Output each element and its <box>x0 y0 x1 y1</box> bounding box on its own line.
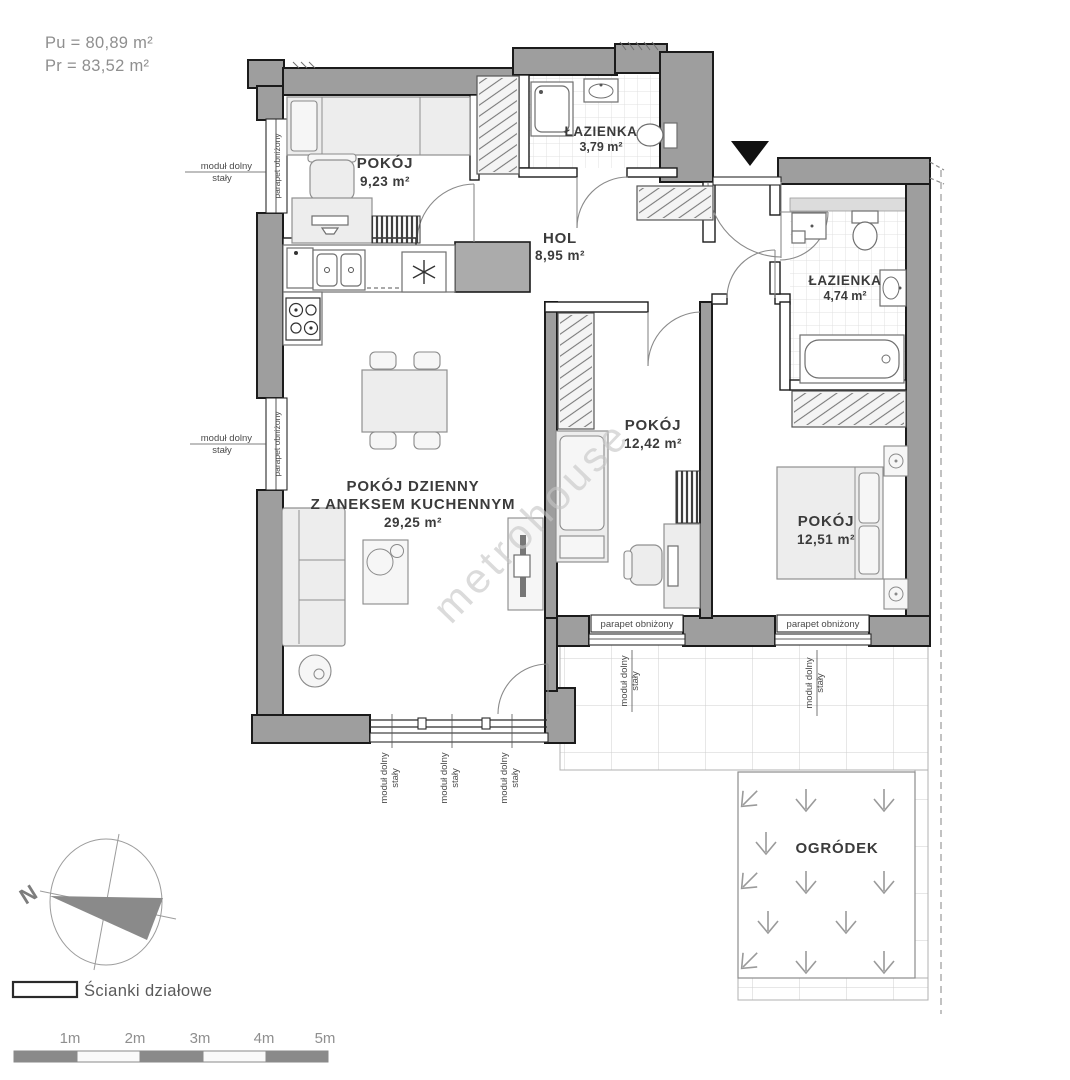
svg-text:Z ANEKSEM KUCHENNYM: Z ANEKSEM KUCHENNYM <box>311 496 516 513</box>
stove-icon <box>286 298 320 340</box>
window-label: parapet obniżony <box>787 619 860 630</box>
wall-continuation-dashes <box>930 162 944 184</box>
svg-text:moduł dolny: moduł dolny <box>201 161 252 172</box>
svg-text:POKÓJ: POKÓJ <box>798 512 855 530</box>
svg-text:ŁAZIENKA: ŁAZIENKA <box>564 124 637 139</box>
fridge-icon <box>402 252 446 292</box>
kitchen-counter <box>283 245 455 345</box>
svg-text:12,51 m²: 12,51 m² <box>797 532 855 547</box>
usable-area: Pu = 80,89 m² <box>45 34 153 52</box>
door-pokoj2 <box>648 312 700 366</box>
svg-text:stały: stały <box>212 173 232 184</box>
annotation-modul-left-mid: moduł dolny stały <box>190 433 266 456</box>
svg-text:moduł dolny: moduł dolny <box>201 433 252 444</box>
shelf-icon <box>372 216 420 243</box>
svg-text:HOL: HOL <box>543 230 577 247</box>
room-label-pokoj3: POKÓJ 12,51 m² <box>797 512 855 547</box>
compass-needle <box>50 896 163 940</box>
entrance-arrow-icon <box>731 141 769 166</box>
coffee-table-icon <box>363 540 408 604</box>
sink-icon <box>584 79 618 102</box>
dining-table-icon <box>362 352 447 449</box>
bathtub-icon <box>800 335 904 383</box>
sink-icon <box>313 250 365 290</box>
svg-text:moduł dolny: moduł dolny <box>439 752 450 803</box>
entrance-threshold <box>713 177 781 185</box>
legend: Ścianki działowe <box>13 981 212 1000</box>
scale-tick: 5m <box>315 1030 336 1047</box>
nightstand-icon <box>884 446 908 476</box>
compass-rose: N <box>15 834 176 970</box>
svg-text:POKÓJ: POKÓJ <box>625 416 682 434</box>
svg-text:8,95 m²: 8,95 m² <box>535 248 585 263</box>
window-pokoj1: parapet obniżony <box>266 119 287 213</box>
scale-tick: 2m <box>125 1030 146 1047</box>
svg-text:3,79 m²: 3,79 m² <box>579 140 622 154</box>
scale-bar: 1m 2m 3m 4m 5m <box>14 1030 335 1062</box>
partition-wall-swatch <box>13 982 77 997</box>
room-label-pokoj1: POKÓJ 9,23 m² <box>357 154 414 189</box>
window-label: parapet obniżony <box>601 619 674 630</box>
svg-text:stały: stały <box>450 768 461 788</box>
scale-tick: 4m <box>254 1030 275 1047</box>
svg-text:4,74 m²: 4,74 m² <box>823 289 866 303</box>
svg-text:12,42 m²: 12,42 m² <box>624 436 682 451</box>
svg-text:POKÓJ: POKÓJ <box>357 154 414 172</box>
sink-icon <box>880 270 906 306</box>
hall-wardrobe-hatch <box>639 188 711 218</box>
svg-text:29,25 m²: 29,25 m² <box>384 515 442 530</box>
window-pokoj3: parapet obniżony <box>775 615 871 645</box>
design-area: Pr = 83,52 m² <box>45 57 150 75</box>
door-pokoj1 <box>417 184 474 242</box>
north-label: N <box>15 880 42 910</box>
svg-text:stały: stały <box>390 768 401 788</box>
svg-text:POKÓJ DZIENNY: POKÓJ DZIENNY <box>347 477 480 495</box>
door-bathroom1 <box>577 177 628 228</box>
window-living-bottom <box>370 718 548 742</box>
svg-text:stały: stały <box>815 673 826 693</box>
sofa-icon <box>282 508 345 646</box>
legend-label: Ścianki działowe <box>84 981 212 1000</box>
scale-tick: 1m <box>60 1030 81 1047</box>
svg-text:moduł dolny: moduł dolny <box>804 657 815 708</box>
bedroom2-furniture <box>777 391 908 609</box>
scale-tick: 3m <box>190 1030 211 1047</box>
annotation-modul-left-top: moduł dolny stały <box>185 161 266 184</box>
window-pokoj2: parapet obniżony <box>589 615 685 645</box>
garden-label: OGRÓDEK <box>795 839 878 857</box>
cabinet-icon <box>792 213 826 243</box>
svg-text:stały: stały <box>510 768 521 788</box>
toilet-icon <box>637 123 677 148</box>
svg-text:stały: stały <box>630 671 641 691</box>
bathroom2-shelf <box>790 198 906 211</box>
side-table-icon <box>299 655 331 687</box>
room-label-pokoj2: POKÓJ 12,42 m² <box>624 416 682 451</box>
shaft-block <box>455 242 530 292</box>
bed-single-icon <box>287 97 470 155</box>
window-label: parapet obniżony <box>272 411 282 477</box>
svg-text:moduł dolny: moduł dolny <box>379 752 390 803</box>
room-label-hol: HOL 8,95 m² <box>535 230 585 263</box>
svg-text:stały: stały <box>212 445 232 456</box>
radiator-icon <box>676 471 700 523</box>
svg-text:moduł dolny: moduł dolny <box>499 752 510 803</box>
garden-area: OGRÓDEK <box>735 772 915 978</box>
nightstand-icon <box>884 579 908 609</box>
svg-text:ŁAZIENKA: ŁAZIENKA <box>808 273 881 288</box>
window-label: parapet obniżony <box>272 133 282 199</box>
svg-text:9,23 m²: 9,23 m² <box>360 174 410 189</box>
wardrobe-hatch <box>479 78 517 172</box>
door-terrace <box>498 664 548 714</box>
svg-text:moduł dolny: moduł dolny <box>619 655 630 706</box>
toilet-icon <box>852 211 878 250</box>
door-pokoj3 <box>727 250 775 298</box>
desk-chair-icon <box>624 524 700 608</box>
window-living-left: parapet obniżony <box>266 398 287 490</box>
area-summary: Pu = 80,89 m² Pr = 83,52 m² <box>45 34 153 75</box>
floor-plan: OGRÓDEK <box>0 0 1070 1080</box>
